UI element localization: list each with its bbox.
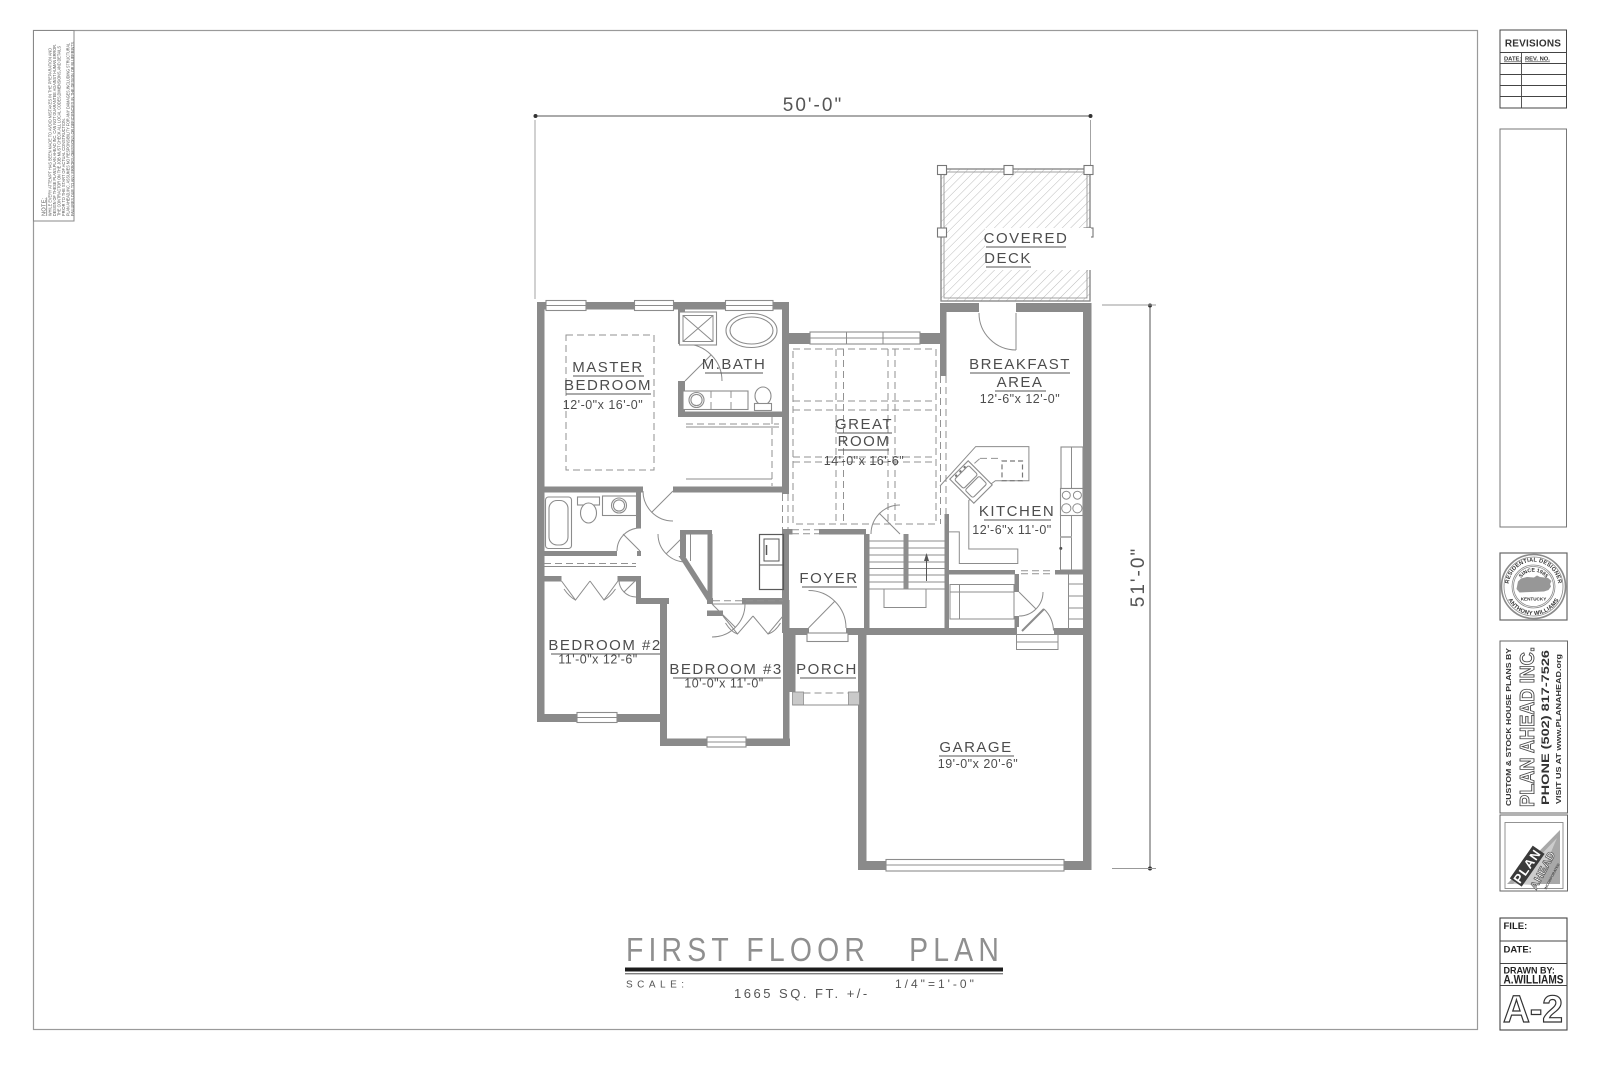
svg-text:KITCHEN: KITCHEN xyxy=(979,503,1055,520)
svg-text:1/4"=1'-0": 1/4"=1'-0" xyxy=(895,977,977,991)
svg-text:DECK: DECK xyxy=(984,250,1032,267)
svg-text:FILE:: FILE: xyxy=(1504,921,1528,932)
svg-text:19'-0"x 20'-6": 19'-0"x 20'-6" xyxy=(938,757,1018,771)
svg-text:DATE:: DATE: xyxy=(1504,945,1532,956)
svg-text:COVERED: COVERED xyxy=(984,230,1069,247)
svg-text:14'-0"x 16'-6": 14'-0"x 16'-6" xyxy=(824,454,904,468)
svg-text:GREAT: GREAT xyxy=(835,416,893,433)
svg-text:MASTER: MASTER xyxy=(572,359,644,376)
svg-text:GARAGE: GARAGE xyxy=(939,739,1012,756)
svg-text:BEDROOM #3: BEDROOM #3 xyxy=(669,661,782,678)
svg-text:REV. NO.: REV. NO. xyxy=(1525,57,1550,63)
svg-text:A.WILLIAMS: A.WILLIAMS xyxy=(1504,973,1564,987)
svg-text:CUSTOM & STOCK HOUSE PLANS BY: CUSTOM & STOCK HOUSE PLANS BY xyxy=(1504,648,1513,806)
svg-text:BREAKFAST: BREAKFAST xyxy=(969,356,1071,373)
svg-text:FIRST FLOOR PLAN: FIRST FLOOR PLAN xyxy=(626,931,1004,968)
svg-text:REVISIONS: REVISIONS xyxy=(1505,39,1561,50)
svg-text:A-2: A-2 xyxy=(1503,989,1563,1031)
svg-text:BEDROOM: BEDROOM xyxy=(564,377,652,394)
svg-text:51'-0": 51'-0" xyxy=(1128,547,1149,607)
svg-text:12'-6"x 12'-0": 12'-6"x 12'-0" xyxy=(980,392,1060,406)
svg-text:12'-0"x 16'-0": 12'-0"x 16'-0" xyxy=(563,398,643,412)
svg-text:FOYER: FOYER xyxy=(799,570,858,587)
svg-text:BEDROOM #2: BEDROOM #2 xyxy=(548,637,661,654)
svg-text:VISIT US AT www.PLANAHEAD.org: VISIT US AT www.PLANAHEAD.org xyxy=(1554,654,1563,804)
svg-text:PLAN AHEAD INC.: PLAN AHEAD INC. xyxy=(1516,647,1539,807)
svg-text:KENTUCKY: KENTUCKY xyxy=(1521,597,1547,602)
svg-text:DATE:: DATE: xyxy=(1504,57,1521,63)
svg-text:FAILURES,DUE TO ANY ERRORS,OMI: FAILURES,DUE TO ANY ERRORS,OMISSIONS,OR … xyxy=(70,41,75,216)
svg-text:M.BATH: M.BATH xyxy=(702,356,767,373)
svg-text:PORCH: PORCH xyxy=(796,661,858,678)
svg-text:PHONE (502) 817-7526: PHONE (502) 817-7526 xyxy=(1540,650,1552,805)
svg-text:12'-6"x 11'-0": 12'-6"x 11'-0" xyxy=(972,523,1051,537)
svg-text:50'-0": 50'-0" xyxy=(783,95,843,116)
svg-text:10'-0"x 11'-0": 10'-0"x 11'-0" xyxy=(684,677,763,691)
svg-text:AREA: AREA xyxy=(997,374,1044,391)
svg-text:ROOM: ROOM xyxy=(838,433,891,450)
svg-text:SCALE:: SCALE: xyxy=(626,980,689,991)
svg-text:11'-0"x 12'-6": 11'-0"x 12'-6" xyxy=(558,653,637,667)
svg-text:1665 SQ. FT. +/-: 1665 SQ. FT. +/- xyxy=(734,986,870,1001)
